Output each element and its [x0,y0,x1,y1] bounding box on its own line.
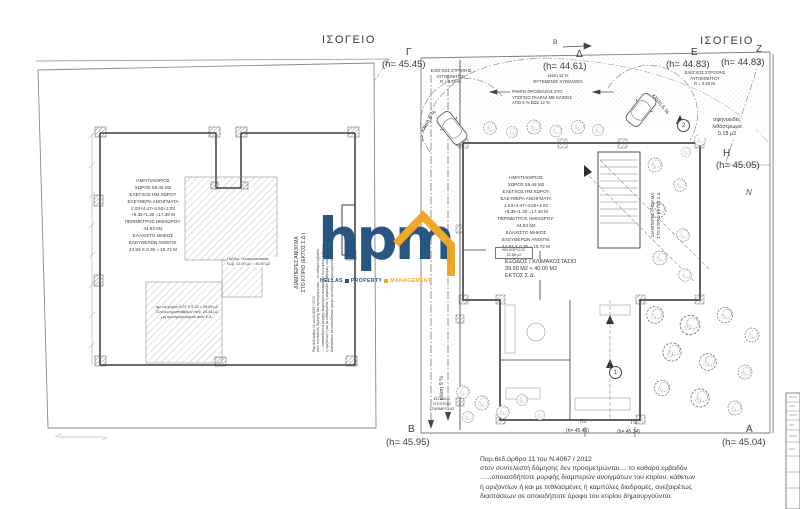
mark-p1: Π1 [580,419,586,426]
mark-p1-height: (h= 45.45) [566,428,589,435]
corner-eta-height: (h= 45.05) [716,160,760,173]
through-opening-label-left: ΔΙΑΜΠΕΡΕΣ ΑΝΟΙΓΜΑ ΣΤΟ ΚΤΙΡΙΟ (ΕΚΤΟΣ Σ.Δ.… [294,210,308,315]
hpm-tagline: HELLASPROPERTYMANAGEMENT [320,278,431,284]
mark-p2-height: (h= 45.34) [617,429,640,436]
grid-bubble-1: 1 [609,366,622,379]
grid-bubble-2: 2 [677,119,690,132]
right-plan-title: ΙΣΟΓΕΙΟ [700,34,754,49]
wedge-paving-note: σφηνοειδές λιθόστρωμα 0.18 μ2 [698,117,756,138]
north-letter: N [746,188,752,199]
corner-delta-height: (h= 44.61) [543,61,587,74]
stats-block-right: ΗΜΙΥΠΑΙΘΡΙΟΣ ΧΩΡΟΣ 59.45 Μ2 ΕΛΕΓΧΟΣ ΗΜ.Χ… [486,175,566,251]
ramp-note: ΡΑΜΠΑ ΠΡΟΣΒΑΣΗΣ ΣΤΟ ΥΠΟΓΕΙΟ ΓΚΑΡΑΖ ΜΕ ΚΛ… [512,89,608,106]
regulation-footnote: Παρ.6εδ.άρθρο 11 του Ν.4067 / 2012 στον … [480,455,780,501]
square-separator-icon [384,279,388,283]
hatch-area-note: ημ.υπ.χώρος 5.07 Χ 5.15 = 26.09 μ2 Σύνολ… [136,305,238,320]
title-block-strip [786,393,800,509]
square-separator-icon [345,279,349,283]
corner-alpha-height: (h= 45.04) [722,437,766,450]
slope-9-label: κλίση 9 % [439,376,446,400]
stair-core [598,152,640,248]
mark-p2: Π2 [631,420,637,427]
corner-gamma: Γ [406,46,412,60]
corner-beta-height: (h= 45.95) [386,437,430,450]
exit-stair-note: ΕΞΟΔΟΣ / ΚΛΙΜΑΚΟΣΤΑΣΙΟ 39.90 Μ2 < 40.00 … [505,259,617,280]
corner-eta: H [723,147,730,161]
corner-alpha: A [746,423,753,437]
corner-beta: B [408,423,415,437]
section-mark-top: B [553,39,557,48]
hpm-watermark: hpm HELLASPROPERTYMANAGEMENT [310,198,465,298]
corner-zeta: Z [756,43,762,57]
left-plan-title: ΙΣΟΓΕΙΟ [322,33,376,48]
stats-block-left: ΗΜΙΥΠΑΙΘΡΙΟΣ ΧΩΡΟΣ 59.45 Μ2 ΕΛΕΓΧΟΣ ΗΜ.Χ… [110,178,196,254]
through-opening-label-right: ΔΙΑΜΠΕΡΕΣ ΑΝΟΙΓΜΑ ΣΤΟ ΚΤΙΡΙΟ ΕΚΤΟΣ Σ.Δ. [650,172,661,258]
area-tag: ΗΜ.ΧΩΡ.ΙΣΟΓ. 22.86 μ2 [495,247,533,259]
corner-zeta-height: (h= 44.83) [721,57,765,70]
corner-delta: Δ [576,48,583,62]
slope-cobbles-note: κλίση 12 % ΦΥΤΕΜΕΝΟΙ ΚΥΒΟΛΙΘΟΙ [515,73,601,84]
turn-check-right-note: ΕΛΕΓΧΟΣ ΣΤΡΟΦΗΣ ΑΥΤΟΚΙΝΗΤΟΥ R = 3.50 Μ. [676,70,734,87]
corner-epsilon: E [691,46,698,60]
drawing-sheet: ΙΣΟΓΕΙΟ ΙΣΟΓΕΙΟ Γ (h= 45.45) Δ (h= 44.61… [0,0,800,509]
sidewalk-note: Πεζόδρ. Ηλιοπροστασίας Εμβ. 12.09 μ2 = 4… [227,257,289,267]
turn-check-left-note: ΕΛΕΓΧΟΣ ΣΤΡΟΦΗΣ ΑΥΤΟΚΙΝΗΤΟΥ R > 3.50 Μ. [420,68,482,85]
